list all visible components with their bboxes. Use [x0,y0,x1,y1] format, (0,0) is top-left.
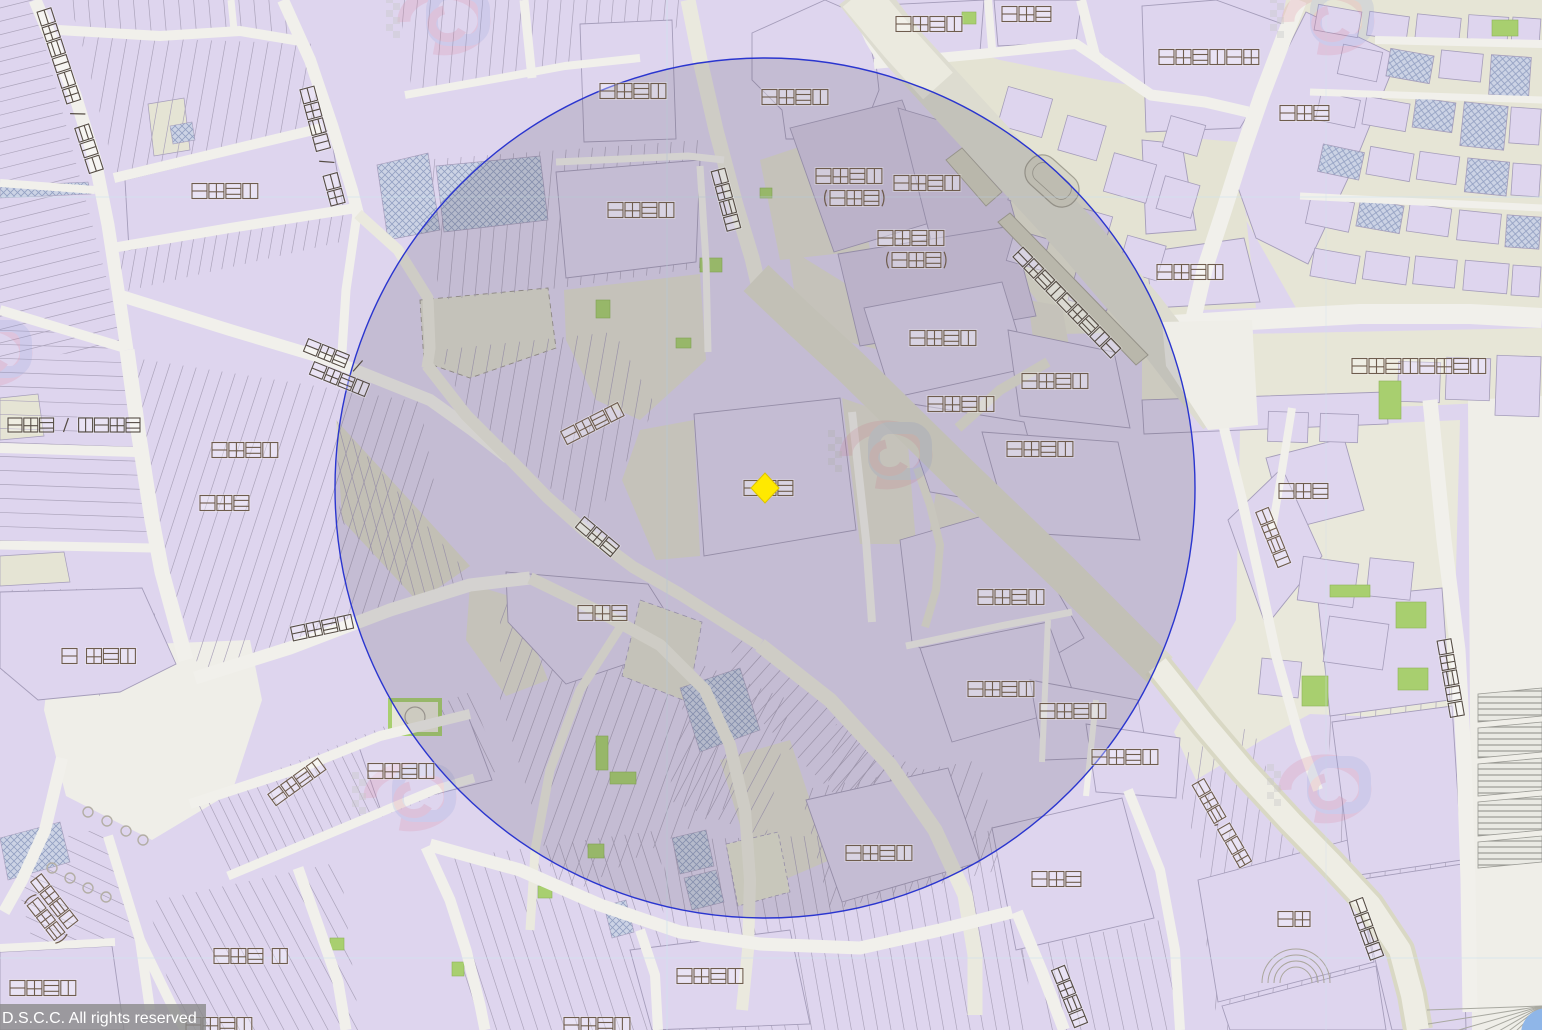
svg-text:D.S.C.C. All rights reserved: D.S.C.C. All rights reserved [2,1010,197,1027]
